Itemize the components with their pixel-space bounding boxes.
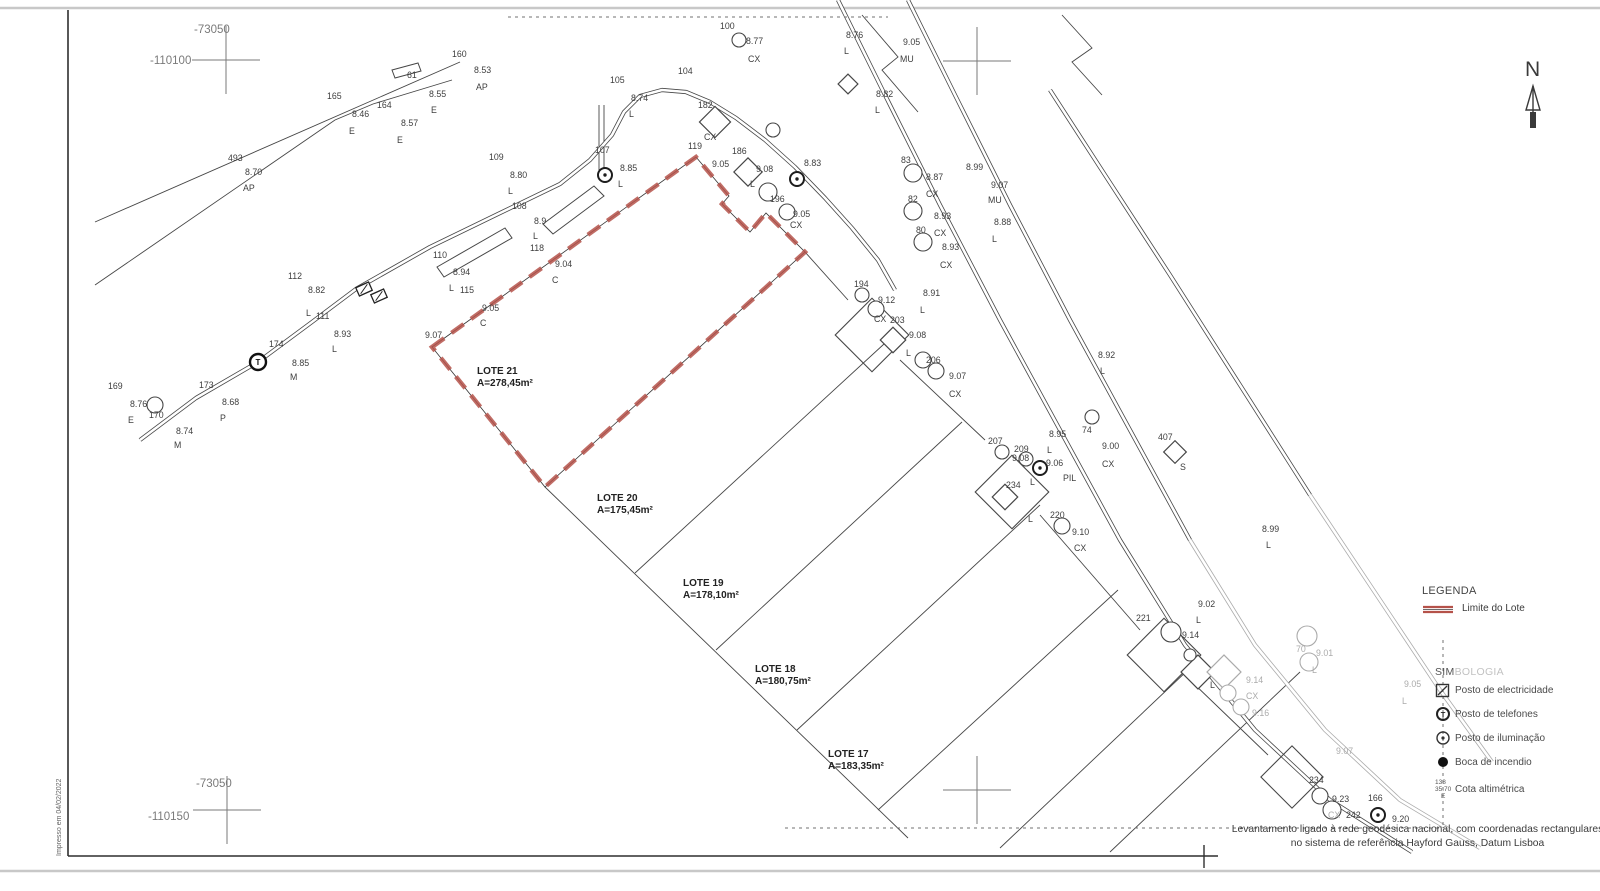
map-label: MU	[988, 195, 1002, 205]
map-label: 8.76	[130, 399, 147, 409]
map-label: 9.04	[555, 259, 572, 269]
map-label: P	[220, 413, 226, 423]
survey-point-circle	[1054, 518, 1070, 534]
map-label: E	[128, 415, 134, 425]
map-label: CX	[1102, 459, 1114, 469]
north-arrow-base	[1530, 112, 1536, 128]
building-outline	[437, 228, 512, 277]
map-label: -110150	[148, 811, 189, 823]
lot-name: LOTE 21	[477, 366, 518, 377]
map-label: 108	[512, 201, 527, 211]
map-label: PIL	[1063, 473, 1076, 483]
svg-text:T: T	[1441, 710, 1446, 719]
lot-19-label: LOTE 19 A=178,10m²	[683, 578, 739, 601]
parcel-line	[805, 252, 848, 300]
survey-point-circle	[855, 288, 869, 302]
roads-layer	[140, 0, 1492, 852]
cota-value: 35.70	[1435, 786, 1451, 793]
lot-17-label: LOTE 17 A=183,35m²	[828, 749, 884, 772]
map-label: 169	[108, 381, 123, 391]
map-label: 8.82	[308, 285, 325, 295]
map-label: 8.82	[876, 89, 893, 99]
map-label: 9.08	[1012, 453, 1029, 463]
map-label: 9.05	[903, 37, 920, 47]
map-label: 9.14	[1182, 630, 1199, 640]
altimetric-sample: 138 35.70 E	[1435, 779, 1455, 800]
map-label: 8.94	[453, 267, 470, 277]
map-label: M	[174, 440, 181, 450]
cota-number: 138	[1435, 779, 1446, 786]
map-label: 8.9	[534, 216, 546, 226]
map-label: E	[397, 135, 403, 145]
map-label: 8.88	[994, 217, 1011, 227]
map-label: 110	[433, 250, 447, 260]
map-label: L	[1266, 540, 1271, 550]
survey-point-circle	[904, 164, 922, 182]
map-label: 9.00	[1102, 441, 1119, 451]
survey-plan-canvas: T -73050-110100-73050-1101501608.53AP618…	[0, 0, 1600, 891]
map-label: 61	[407, 70, 417, 80]
parcel-line	[797, 505, 1040, 730]
footer-note: Levantamento ligado à rede geodésica nac…	[1225, 823, 1600, 850]
parcel-line	[95, 80, 452, 285]
map-label: 111	[316, 311, 329, 321]
map-label: CX	[926, 189, 938, 199]
map-label: 8.74	[631, 93, 648, 103]
map-label: CX	[934, 228, 946, 238]
map-label: 206	[926, 355, 941, 365]
map-label: 8.55	[429, 89, 446, 99]
map-label: 9.23	[1332, 794, 1349, 804]
survey-point-circle	[1312, 788, 1328, 804]
electricity-post-icon	[1435, 683, 1455, 698]
north-arrow: N	[1510, 52, 1560, 142]
lot-area: A=178,10m²	[683, 590, 739, 601]
map-label: 165	[327, 91, 342, 101]
map-label: 100	[720, 21, 735, 31]
symbology-row-telephone: T Posto de telefones	[1435, 702, 1553, 726]
map-label: 8.99	[1262, 524, 1279, 534]
survey-point-circle	[1297, 626, 1317, 646]
map-label: E	[349, 126, 355, 136]
map-label: 8.70	[245, 167, 262, 177]
map-label: 83	[901, 155, 911, 165]
map-label: -73050	[194, 24, 230, 36]
map-label: 8.46	[352, 109, 369, 119]
map-label: L	[1100, 366, 1105, 376]
map-label: 9.07	[991, 180, 1008, 190]
parcel-line	[1000, 668, 1190, 848]
map-label: 8.93	[934, 211, 951, 221]
map-label: L	[1030, 477, 1035, 487]
symbology-title-dark: SIM	[1435, 666, 1455, 678]
map-label: L	[875, 105, 880, 115]
road-core	[838, 0, 1412, 852]
symbology-row-electricity: Posto de electricidade	[1435, 678, 1553, 702]
map-label: 8.76	[846, 30, 863, 40]
lot-21-label: LOTE 21 A=278,45m²	[477, 366, 533, 389]
symbology-row-hydrant: Boca de incendio	[1435, 750, 1553, 774]
map-label: 194	[854, 279, 869, 289]
map-label: 109	[489, 152, 504, 162]
lamp-post-icon	[1435, 730, 1455, 746]
map-label: 407	[1158, 432, 1173, 442]
map-label: 8.80	[510, 170, 527, 180]
map-label: 8.91	[923, 288, 940, 298]
map-label: 8.85	[620, 163, 637, 173]
lot-area: A=183,35m²	[828, 761, 884, 772]
survey-point-circle	[732, 33, 746, 47]
map-label: L	[1312, 665, 1317, 675]
map-label: 9.07	[1336, 746, 1353, 756]
symbology-row-altimetric: 138 35.70 E Cota altimétrica	[1435, 774, 1553, 804]
legend: LEGENDA Limite do Lote	[1422, 585, 1525, 614]
map-label: -73050	[196, 778, 232, 790]
symbology-label: Posto de iluminação	[1455, 733, 1545, 744]
map-label: L	[533, 231, 538, 241]
map-label: 160	[452, 49, 467, 59]
symbology-title-light: BOLOGIA	[1455, 666, 1504, 678]
map-label: 221	[1136, 613, 1151, 623]
symbology-row-lamp: Posto de iluminação	[1435, 726, 1553, 750]
lot-limit-swatch-icon	[1422, 604, 1454, 614]
map-label: L	[1210, 680, 1215, 690]
map-label: 70	[1296, 644, 1306, 654]
map-label: -110100	[150, 55, 191, 67]
map-label: 186	[732, 146, 747, 156]
map-label: 9.05	[712, 159, 729, 169]
map-label: 8.68	[222, 397, 239, 407]
map-label: 8.74	[176, 426, 193, 436]
road-edge	[838, 0, 1412, 852]
map-label: L	[992, 234, 997, 244]
map-label: CX	[940, 260, 952, 270]
map-label: 220	[1050, 510, 1065, 520]
map-label: MU	[900, 54, 914, 64]
map-label: 8.93	[942, 242, 959, 252]
lot-name: LOTE 19	[683, 578, 724, 589]
map-label: L	[508, 186, 513, 196]
lamp-post-icon	[795, 177, 798, 180]
lot-limit-red-layer	[432, 157, 805, 487]
map-label: S	[1180, 462, 1186, 472]
map-label: 9.02	[1198, 599, 1215, 609]
lot-20-label: LOTE 20 A=175,45m²	[597, 493, 653, 516]
map-label: 9.01	[1316, 648, 1333, 658]
survey-point-circle	[1233, 699, 1249, 715]
survey-point-circle	[904, 202, 922, 220]
map-label: 8.93	[334, 329, 351, 339]
map-label: 8.77	[746, 36, 763, 46]
map-label: 8.95	[1049, 429, 1066, 439]
map-label: L	[1047, 445, 1052, 455]
map-label: 8.53	[474, 65, 491, 75]
utility-box-icon	[838, 74, 858, 94]
parcel-line	[1040, 515, 1140, 630]
map-label: L	[1028, 514, 1033, 524]
map-label: L	[750, 179, 755, 189]
map-label: 82	[908, 194, 918, 204]
map-label: L	[306, 308, 311, 318]
map-label: 9.05	[793, 209, 810, 219]
map-label: AP	[243, 183, 255, 193]
lamp-post-icon	[603, 173, 606, 176]
utility-box-icon	[880, 327, 905, 352]
map-label: 9.07	[949, 371, 966, 381]
map-label: L	[629, 109, 634, 119]
map-label: 9.07	[425, 330, 442, 340]
map-label: CX	[1246, 691, 1258, 701]
lamp-post-icon	[1376, 813, 1379, 816]
symbology-title: SIMBOLOGIA	[1435, 666, 1553, 678]
lamp-post-icon	[1038, 466, 1041, 469]
map-label: 8.99	[966, 162, 983, 172]
map-label: 242	[1346, 810, 1361, 820]
lot-area: A=278,45m²	[477, 378, 533, 389]
parcel-line	[716, 422, 962, 650]
map-label: 9.14	[1246, 675, 1263, 685]
map-label: L	[449, 283, 454, 293]
parcel-line	[878, 590, 1118, 810]
map-label: L	[1196, 615, 1201, 625]
footer-note-line1: Levantamento ligado à rede geodésica nac…	[1225, 823, 1600, 837]
map-label: L	[920, 305, 925, 315]
map-label: 8.92	[1098, 350, 1115, 360]
map-label: 196	[770, 194, 785, 204]
map-label: 174	[269, 339, 284, 349]
map-label: CX	[748, 54, 760, 64]
map-label: 115	[460, 285, 474, 295]
map-label: 8.87	[926, 172, 943, 182]
map-label: 8.85	[292, 358, 309, 368]
map-label: 8.83	[804, 158, 821, 168]
map-label: 8.57	[401, 118, 418, 128]
lot-name: LOTE 18	[755, 664, 796, 675]
map-label: E	[431, 105, 437, 115]
map-label: 9.06	[1046, 458, 1063, 468]
map-label: L	[332, 344, 337, 354]
symbology-label: Cota altimétrica	[1455, 784, 1524, 795]
map-label: 9.05	[482, 303, 499, 313]
map-label: 207	[988, 436, 1003, 446]
survey-point-circle	[1184, 649, 1196, 661]
survey-point-circle	[928, 363, 944, 379]
survey-point-circle	[1161, 622, 1181, 642]
north-letter: N	[1525, 58, 1540, 81]
symbology-label: Posto de telefones	[1455, 709, 1538, 720]
parcel-line	[635, 344, 884, 573]
lot-name: LOTE 17	[828, 749, 869, 760]
survey-point-circle	[995, 445, 1009, 459]
symbology-label: Boca de incendio	[1455, 757, 1532, 768]
symbols-layer: T	[147, 33, 1385, 822]
survey-point-circle	[766, 123, 780, 137]
map-label: CX	[874, 314, 886, 324]
print-stamp: Impresso em 04/02/2022	[56, 779, 63, 856]
map-label: 9.12	[878, 295, 895, 305]
map-label: 80	[916, 225, 926, 235]
symbology-label: Posto de electricidade	[1455, 685, 1553, 696]
map-label: 166	[1368, 793, 1383, 803]
survey-point-circle	[1220, 685, 1236, 701]
map-label: CX	[790, 220, 802, 230]
map-label: 182	[698, 100, 713, 110]
cota-letter: E	[1435, 793, 1445, 800]
telephone-post-icon: T	[256, 358, 261, 367]
map-label: 119	[688, 141, 702, 151]
map-label: 234	[1006, 480, 1021, 490]
map-label: 203	[890, 315, 905, 325]
map-label: 170	[149, 410, 164, 420]
map-label: 493	[228, 153, 243, 163]
lot-limit-label: Limite do Lote	[1462, 603, 1525, 614]
symbology: SIMBOLOGIA Posto de electricidade T Post…	[1435, 666, 1553, 804]
map-label: C	[552, 275, 559, 285]
telephone-post-icon: T	[1435, 706, 1455, 722]
map-label: 105	[610, 75, 625, 85]
map-label: M	[290, 372, 297, 382]
map-label: 74	[1082, 425, 1092, 435]
map-label: 9.10	[1072, 527, 1089, 537]
map-label: 9.16	[1252, 708, 1269, 718]
map-label: 104	[678, 66, 693, 76]
map-label: L	[906, 348, 911, 358]
map-label: 112	[288, 271, 302, 281]
map-label: CX	[704, 132, 716, 142]
map-label: AP	[476, 82, 488, 92]
lot-18-label: LOTE 18 A=180,75m²	[755, 664, 811, 687]
survey-point-circle	[914, 233, 932, 251]
parcel-line	[1062, 15, 1102, 95]
lot-name: LOTE 20	[597, 493, 638, 504]
building-outline	[543, 186, 604, 234]
fire-hydrant-icon	[1435, 754, 1455, 770]
lot21-survey-line	[432, 157, 805, 487]
parcel-line	[95, 62, 460, 222]
map-label: L	[1402, 696, 1407, 706]
survey-point-circle	[1085, 410, 1099, 424]
parcel-line	[545, 487, 908, 838]
lot-area: A=175,45m²	[597, 505, 653, 516]
map-label: CX	[1328, 810, 1340, 820]
map-label: L	[618, 179, 623, 189]
map-label: C	[480, 318, 487, 328]
utility-box-icon	[1164, 441, 1187, 464]
map-label: 9.05	[1404, 679, 1421, 689]
map-label: 173	[199, 380, 214, 390]
map-label: 118	[530, 243, 544, 253]
map-label: 234	[1309, 775, 1324, 785]
lot21-limit-red-dashed	[432, 157, 805, 487]
map-label: 9.08	[909, 330, 926, 340]
map-label: L	[844, 46, 849, 56]
map-label: CX	[1074, 543, 1086, 553]
map-label: 164	[377, 100, 392, 110]
map-label: 9.08	[756, 164, 773, 174]
footer-note-line2: no sistema de referência Hayford Gauss, …	[1225, 837, 1600, 851]
map-label: 107	[595, 145, 610, 155]
lot-area: A=180,75m²	[755, 676, 811, 687]
survey-plan-sheet: { "north_label": "N", "colors": { "ink":…	[0, 0, 1600, 891]
map-label: CX	[949, 389, 961, 399]
legend-title: LEGENDA	[1422, 585, 1525, 597]
